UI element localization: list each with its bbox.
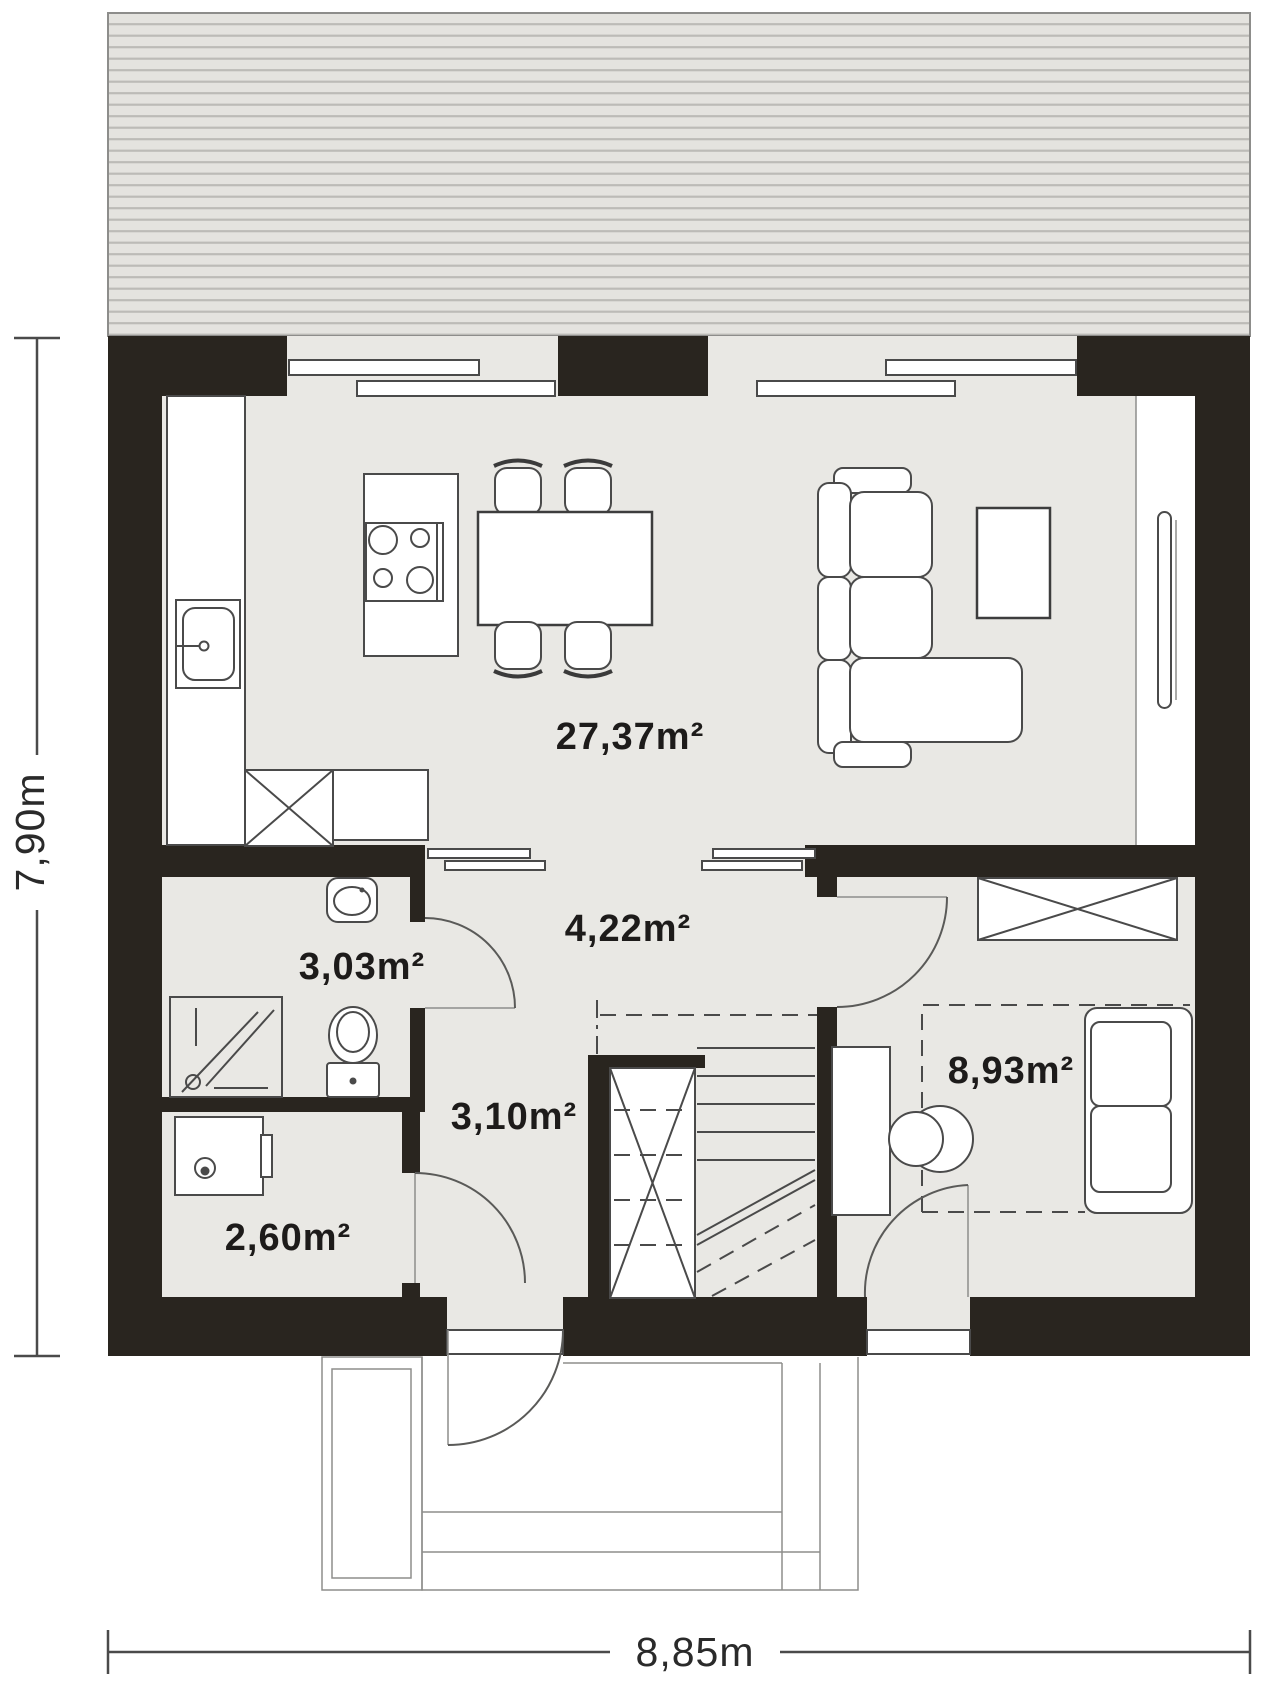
round-chair [889, 1106, 973, 1172]
floor-plan-drawing: 27,37m² 4,22m² 3,03m² 3,10m² 2,60m² 8,93… [0, 0, 1280, 1698]
label-bathroom-area: 3,03m² [299, 946, 425, 988]
chair [565, 622, 611, 669]
wall-bath-hall-upper [410, 877, 425, 922]
label-width-dimension: 8,85m [636, 1629, 755, 1675]
dimension-left: 7,90m [7, 338, 60, 1356]
planter [322, 1357, 422, 1590]
kitchen-cabinet [333, 770, 428, 840]
desk [832, 1047, 890, 1215]
porch-outline [422, 1357, 858, 1590]
bedroom-door-sill [867, 1330, 970, 1354]
label-living-kitchen-area: 27,37m² [556, 716, 705, 758]
kitchen-fridge [245, 770, 333, 846]
wall-living-bedroom [805, 845, 1195, 877]
sliding-panel-1 [289, 360, 479, 375]
sliding-panel-3 [886, 360, 1076, 375]
wall-bath-utility [160, 1097, 420, 1112]
toilet [327, 1007, 379, 1097]
wall-top-middle [558, 336, 708, 396]
label-bedroom-area: 8,93m² [948, 1050, 1074, 1092]
chair [565, 468, 611, 515]
coffee-table [977, 508, 1050, 618]
floor-plan-page: 27,37m² 4,22m² 3,03m² 3,10m² 2,60m² 8,93… [0, 0, 1280, 1698]
wall-left [108, 336, 162, 1356]
entry-porch [322, 1357, 858, 1590]
wall-bath-hall-lower [410, 1008, 425, 1112]
terrace-deck [108, 13, 1250, 336]
wall-utility-hall-stub [402, 1283, 420, 1297]
utility-room [175, 1117, 272, 1195]
wall-bottom-middle [563, 1297, 867, 1356]
wall-stair-top [588, 1055, 705, 1068]
cooktop [366, 523, 443, 601]
chair [495, 622, 541, 669]
washbasin [327, 878, 377, 922]
kitchen-sink [176, 600, 240, 688]
wall-bedroom-stub [817, 877, 837, 897]
wall-stair-left [588, 1055, 610, 1300]
label-height-dimension: 7,90m [7, 773, 53, 892]
chair [495, 468, 541, 515]
front-door [447, 1297, 563, 1445]
dining-table [478, 512, 652, 625]
boiler [175, 1117, 272, 1195]
stair-void [610, 1068, 695, 1298]
wardrobe [978, 878, 1177, 940]
sliding-panel-2 [357, 381, 555, 396]
wall-kitchen-bath [160, 845, 425, 877]
kitchen-island [364, 474, 458, 656]
label-vestibule-area: 3,10m² [451, 1096, 577, 1138]
wall-utility-hall-upper [402, 1112, 420, 1173]
dimension-bottom: 8,85m [108, 1629, 1250, 1675]
wall-bottom-right [970, 1297, 1250, 1356]
bed [1085, 1008, 1192, 1213]
wall-bottom-left [108, 1297, 447, 1356]
label-utility-area: 2,60m² [225, 1217, 351, 1259]
label-hall-area: 4,22m² [565, 908, 691, 950]
sliding-panel-4 [757, 381, 955, 396]
wall-right [1195, 336, 1250, 1356]
front-door-sill [447, 1330, 563, 1354]
